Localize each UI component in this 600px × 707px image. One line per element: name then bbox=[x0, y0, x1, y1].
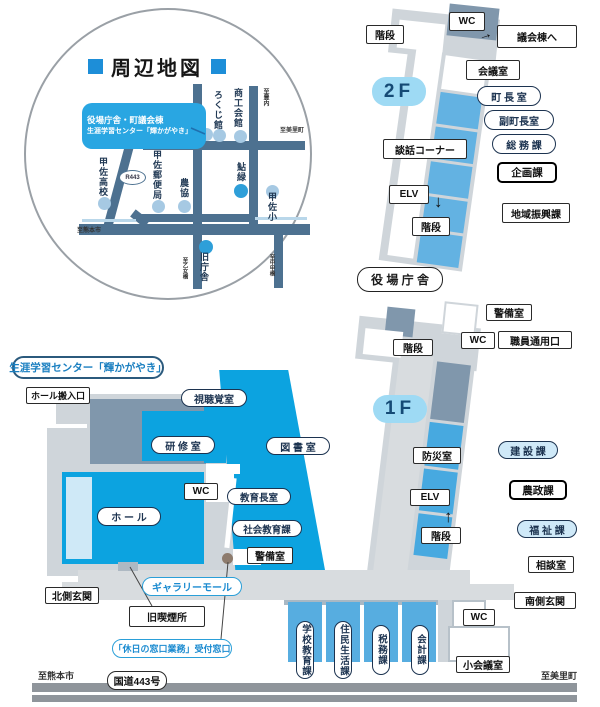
shakai-kyoiku-label: 社会教育課 bbox=[232, 520, 302, 537]
gakko-kyoiku-label: 学校教育課 bbox=[296, 621, 314, 679]
f2-chiiki-shinko-text: 地域振興課 bbox=[511, 206, 561, 221]
f2-deputy-mayor-text: 副町長室 bbox=[499, 113, 539, 128]
dot-kosa-koko bbox=[98, 197, 111, 210]
label-to-otomebashi: 至乙女橋 bbox=[181, 257, 187, 279]
holiday-reception-dot bbox=[222, 553, 233, 564]
f1-security-top-text: 警備室 bbox=[494, 305, 524, 320]
bottom-wc-label: WC bbox=[463, 609, 495, 626]
map-road-spur bbox=[138, 214, 256, 222]
f1-fukushi-label: 福 祉 課 bbox=[517, 520, 577, 538]
corridor-right-arm bbox=[440, 584, 514, 600]
route-443-badge: R443 bbox=[119, 170, 146, 185]
dot-yubinkyoku bbox=[152, 200, 165, 213]
center-security-label: 警備室 bbox=[247, 547, 293, 564]
gallery-mall-text: ギャラリーモール bbox=[152, 579, 232, 594]
route443-label: 国道443号 bbox=[107, 671, 167, 690]
zeimu-label: 税務課 bbox=[372, 625, 390, 675]
label-to-misato-map: 至美里町 bbox=[280, 128, 304, 134]
dot-nokyo bbox=[178, 200, 191, 213]
f1-badge-text: 1F bbox=[385, 398, 415, 420]
kyoikucho-label: 教育長室 bbox=[227, 488, 291, 505]
f1-stairs-top-label: 階段 bbox=[393, 339, 433, 356]
f1-sodan-text: 相談室 bbox=[536, 557, 566, 572]
north-entrance-text: 北側玄関 bbox=[52, 588, 92, 603]
gallery-mall-corridor bbox=[78, 570, 470, 600]
f1-security-top-label: 警備室 bbox=[486, 304, 532, 321]
av-room-label: 視聴覚室 bbox=[181, 389, 247, 407]
f2-stairs-top-text: 階段 bbox=[375, 27, 395, 42]
town-hall-building-label: 役 場 庁 舎 bbox=[357, 267, 443, 292]
area-map-title: 周辺地図 bbox=[88, 52, 226, 81]
label-to-kumamoto-map: 至熊本市 bbox=[77, 228, 101, 234]
label-to-toyouchi: 至豊内 bbox=[262, 88, 268, 106]
hall-loading-text: ホール搬入口 bbox=[31, 389, 85, 402]
hall-text: ホ ー ル bbox=[111, 509, 147, 524]
f1-bosai-label: 防災室 bbox=[413, 447, 461, 464]
map-info-box: 役場庁舎・町議会棟 生涯学習センター「輝かがやき」 bbox=[82, 103, 206, 149]
kaikei-label: 会計課 bbox=[411, 625, 429, 675]
map-info-line1: 役場庁舎・町議会棟 bbox=[87, 115, 201, 127]
route443-text: 国道443号 bbox=[114, 673, 161, 688]
left-wc-label: WC bbox=[184, 483, 218, 500]
label-shoko-kaikan: 商工会館 bbox=[233, 88, 242, 128]
f2-danwa-corner-label: 談話コーナー bbox=[383, 139, 467, 159]
map-road-edge-left bbox=[82, 219, 136, 222]
f1-elv-text: ELV bbox=[421, 492, 440, 503]
title-square-right-icon bbox=[211, 59, 226, 74]
f2-badge: 2F bbox=[372, 77, 426, 106]
to-kumamoto-label: 至熊本市 bbox=[38, 672, 74, 681]
hall-loading-label: ホール搬入口 bbox=[26, 387, 90, 404]
map-info-line2: 生涯学習センター「輝かがやき」 bbox=[87, 127, 201, 137]
f1-stairs-mid-label: 階段 bbox=[421, 527, 461, 544]
f1-wc-top-label: WC bbox=[461, 332, 495, 349]
f1-fukushi-text: 福 祉 課 bbox=[529, 522, 565, 537]
kenshu-text: 研 修 室 bbox=[165, 438, 201, 453]
label-ayumidori: 鮎緑 bbox=[236, 162, 245, 182]
f1-nosei-label: 農政課 bbox=[509, 480, 567, 500]
f2-room-mayor bbox=[436, 92, 482, 130]
f2-to-assembly-text: 議会棟へ bbox=[517, 29, 557, 44]
hall-label: ホ ー ル bbox=[97, 507, 161, 526]
lifelong-learning-center-label: 生涯学習センター「輝かがやき」 bbox=[12, 356, 164, 379]
f2-kikaku-text: 企画課 bbox=[511, 165, 543, 180]
map-road-vertical-2 bbox=[249, 86, 258, 234]
to-misato-label: 至美里町 bbox=[541, 672, 577, 681]
f2-stairs-bottom-text: 階段 bbox=[421, 219, 441, 234]
f2-elv-label: ELV bbox=[389, 185, 429, 204]
jumin-seikatsu-label: 住民生活課 bbox=[334, 621, 352, 679]
av-room-text: 視聴覚室 bbox=[194, 391, 234, 406]
dot-rokujikan bbox=[213, 129, 226, 142]
f1-south-entrance-label: 南側玄関 bbox=[514, 592, 576, 609]
holiday-reception-label: 「休日の窓口業務」受付窓口 bbox=[112, 639, 232, 658]
lifelong-learning-center-text: 生涯学習センター「輝かがやき」 bbox=[9, 360, 167, 375]
north-entrance-label: 北側玄関 bbox=[45, 587, 99, 604]
f1-elv-label: ELV bbox=[410, 489, 450, 506]
label-yubinkyoku: 甲佐郵便局 bbox=[152, 150, 161, 200]
f2-meeting-room-text: 会議室 bbox=[478, 63, 508, 78]
route-443-text: R443 bbox=[125, 175, 139, 181]
f2-elv-text: ELV bbox=[400, 189, 419, 200]
town-hall-building-text: 役 場 庁 舎 bbox=[371, 271, 429, 288]
jumin-seikatsu-text: 住民生活課 bbox=[336, 624, 350, 677]
f1-nosei-text: 農政課 bbox=[522, 483, 554, 498]
label-kyu-chosha: 旧庁舎 bbox=[199, 252, 208, 282]
f2-mayor-text: 町 長 室 bbox=[491, 89, 527, 104]
f2-somu-label: 総 務 課 bbox=[492, 134, 556, 154]
old-smoking-spot bbox=[118, 562, 138, 571]
tosho-text: 図 書 室 bbox=[280, 439, 316, 454]
f2-somu-text: 総 務 課 bbox=[506, 137, 542, 152]
f1-staff-entrance-text: 職員通用口 bbox=[510, 333, 560, 348]
f1-main-wing bbox=[366, 352, 475, 586]
f2-deputy-mayor-label: 副町長室 bbox=[484, 110, 554, 130]
label-to-chukobashi: 至中甲橋 bbox=[268, 254, 274, 276]
f1-stairs-up-arrow-icon: ↑ bbox=[444, 508, 453, 525]
f2-wc-text: WC bbox=[459, 16, 476, 27]
route443-bar-lower bbox=[32, 695, 577, 702]
floor-map-page: 周辺地図 役場庁舎・町議会棟 生涯学習センター「輝かがやき」 R443 ろくじ館… bbox=[0, 0, 600, 707]
dot-shoko-kaikan bbox=[234, 130, 247, 143]
f2-badge-text: 2F bbox=[384, 81, 414, 103]
bottom-wc-text: WC bbox=[471, 612, 488, 623]
f2-danwa-corner-text: 談話コーナー bbox=[395, 142, 455, 157]
map-road-edge-right bbox=[255, 217, 307, 220]
kyoikucho-text: 教育長室 bbox=[240, 490, 278, 504]
area-map-title-text: 周辺地図 bbox=[111, 52, 203, 81]
f2-mayor-label: 町 長 室 bbox=[477, 86, 541, 106]
tosho-label: 図 書 室 bbox=[266, 437, 330, 455]
label-nokyo: 農協 bbox=[179, 178, 188, 198]
title-square-left-icon bbox=[88, 59, 103, 74]
small-meeting-text: 小会議室 bbox=[463, 657, 503, 672]
f2-kikaku-label: 企画課 bbox=[497, 162, 557, 183]
f1-bosai-text: 防災室 bbox=[422, 448, 452, 463]
f2-stairs-down-arrow-icon: ↓ bbox=[434, 193, 443, 210]
shakai-kyoiku-text: 社会教育課 bbox=[243, 522, 291, 536]
gallery-mall-label: ギャラリーモール bbox=[142, 577, 242, 596]
small-meeting-label: 小会議室 bbox=[456, 656, 510, 673]
hall-stage bbox=[66, 477, 92, 559]
zeimu-text: 税務課 bbox=[374, 634, 388, 666]
label-kosa-koko: 甲佐高校 bbox=[98, 157, 107, 197]
kenshu-label: 研 修 室 bbox=[151, 436, 215, 454]
holiday-reception-text: 「休日の窓口業務」受付窓口 bbox=[113, 642, 230, 655]
label-rokujikan: ろくじ館 bbox=[213, 90, 222, 130]
f1-sodan-label: 相談室 bbox=[528, 556, 574, 573]
f2-room-chiiki-shinko bbox=[417, 231, 463, 269]
gakko-kyoiku-text: 学校教育課 bbox=[298, 624, 312, 677]
kaikei-text: 会計課 bbox=[413, 634, 427, 666]
old-smoking-label: 旧喫煙所 bbox=[129, 606, 205, 627]
left-wc-text: WC bbox=[193, 486, 210, 497]
f1-room-office bbox=[430, 361, 471, 423]
f2-to-assembly-label: 議会棟へ bbox=[497, 25, 577, 48]
f1-wc-top-text: WC bbox=[470, 335, 487, 346]
f2-stairs-bottom-label: 階段 bbox=[412, 217, 450, 236]
old-smoking-text: 旧喫煙所 bbox=[147, 609, 187, 624]
f1-stairs-mid-text: 階段 bbox=[431, 528, 451, 543]
f2-stairs-top-label: 階段 bbox=[366, 25, 404, 44]
f1-south-entrance-text: 南側玄関 bbox=[525, 593, 565, 608]
f1-kensetsu-label: 建 設 課 bbox=[498, 441, 558, 459]
dot-ayumidori bbox=[234, 184, 248, 198]
f1-badge: 1F bbox=[373, 395, 427, 423]
center-security-text: 警備室 bbox=[255, 548, 285, 563]
f1-staff-entrance-label: 職員通用口 bbox=[498, 331, 572, 349]
f1-kensetsu-text: 建 設 課 bbox=[510, 443, 546, 458]
f2-meeting-room-label: 会議室 bbox=[466, 60, 520, 80]
f2-chiiki-shinko-label: 地域振興課 bbox=[502, 203, 570, 223]
center-gap-horizontal bbox=[206, 464, 240, 474]
map-road-vertical-3 bbox=[274, 234, 283, 288]
map-road-horizontal-main bbox=[79, 224, 310, 235]
f1-stairs-top-text: 階段 bbox=[403, 340, 423, 355]
label-kosa-sho: 甲佐小 bbox=[267, 192, 276, 222]
